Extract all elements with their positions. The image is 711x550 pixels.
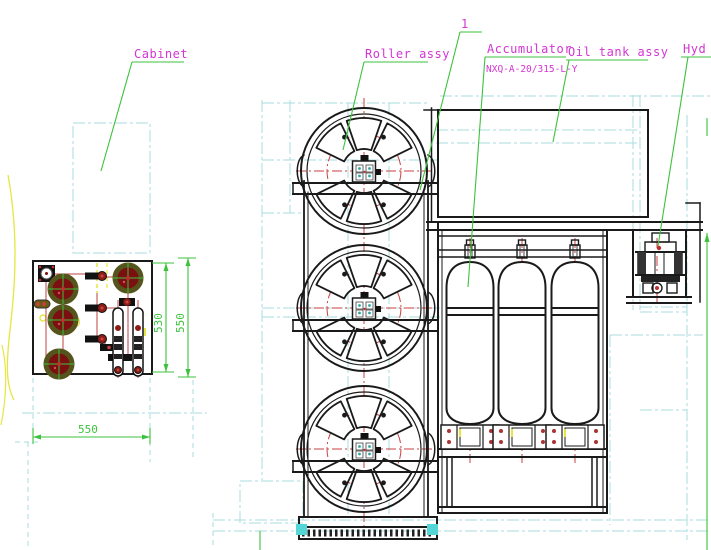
- control-panel: [33, 261, 152, 379]
- dim-text-530: 530: [152, 313, 165, 333]
- panel-valve-center: [119, 298, 135, 306]
- break-line: [1, 175, 15, 425]
- label-balloon-1: 1: [461, 17, 469, 31]
- panel-gauge: [113, 263, 143, 293]
- oil-tank: [438, 110, 648, 217]
- cad-drawing-canvas: 530 550 550 Cabinet Roller assy 1 Accumu…: [0, 0, 711, 550]
- dim-text-550h: 550: [78, 423, 98, 436]
- roller-support-bars: [293, 183, 438, 472]
- roller-hub: [353, 292, 382, 319]
- label-hyd: Hyd: [683, 42, 706, 56]
- label-oil-tank-assy: Oil tank assy: [568, 45, 668, 59]
- panel-gauge: [48, 274, 78, 304]
- plate-highlight: [427, 524, 438, 535]
- cabinet-side-outline: [73, 123, 150, 253]
- accumulator-cylinder-3: [552, 240, 599, 424]
- dimension-550-vertical: 550: [174, 258, 196, 377]
- label-roller-assy: Roller assy: [365, 47, 450, 61]
- panel-pill-component: [34, 300, 50, 308]
- roller-assembly: [293, 108, 438, 539]
- roller-hub: [353, 155, 382, 182]
- panel-gauge: [44, 349, 74, 379]
- panel-valve-knob: [85, 304, 107, 313]
- label-accumulator: Accumulator: [487, 42, 572, 56]
- panel-handle: [133, 308, 143, 376]
- panel-handle: [113, 308, 123, 376]
- cylinder-mount: [441, 425, 499, 449]
- accumulator-rack: [438, 222, 607, 513]
- dimension-530: 530: [152, 263, 174, 372]
- cylinder-mount: [546, 425, 604, 449]
- panel-valve-knob: [85, 272, 107, 281]
- panel-valve-knob: [85, 335, 107, 344]
- accumulator-cylinder-2: [499, 240, 546, 424]
- roller-hub: [353, 433, 382, 460]
- labels: Cabinet Roller assy 1 Accumulator NXQ-A-…: [134, 17, 706, 75]
- label-accumulator-model: NXQ-A-20/315-L-Y: [486, 64, 578, 75]
- label-cabinet: Cabinet: [134, 47, 188, 61]
- dim-text-550v: 550: [174, 313, 187, 333]
- cylinder-mount: [493, 425, 551, 449]
- panel-gauge: [48, 305, 78, 335]
- dimension-550-horizontal: 550: [33, 423, 150, 444]
- plate-highlight: [296, 524, 307, 535]
- accumulator-cylinder-1: [447, 240, 494, 424]
